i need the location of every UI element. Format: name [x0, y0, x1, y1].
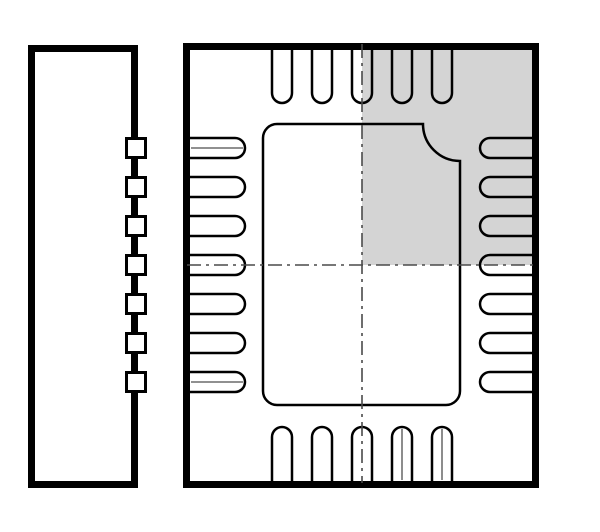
- side-terminal-bump-3: [127, 217, 146, 236]
- side-terminal-bump-2: [127, 178, 146, 197]
- side-terminal-bump-7: [127, 373, 146, 392]
- side-terminal-bump-5: [127, 295, 146, 314]
- package-side-view: [32, 49, 146, 485]
- side-terminal-bump-4: [127, 256, 146, 275]
- side-terminal-bump-1: [127, 139, 146, 158]
- pin1-shaded-quadrant: [362, 47, 534, 265]
- side-terminal-bump-6: [127, 334, 146, 353]
- package-drawing-svg: [0, 0, 600, 532]
- package-drawing-figure: [0, 0, 600, 532]
- side-view-body-outline: [32, 49, 135, 485]
